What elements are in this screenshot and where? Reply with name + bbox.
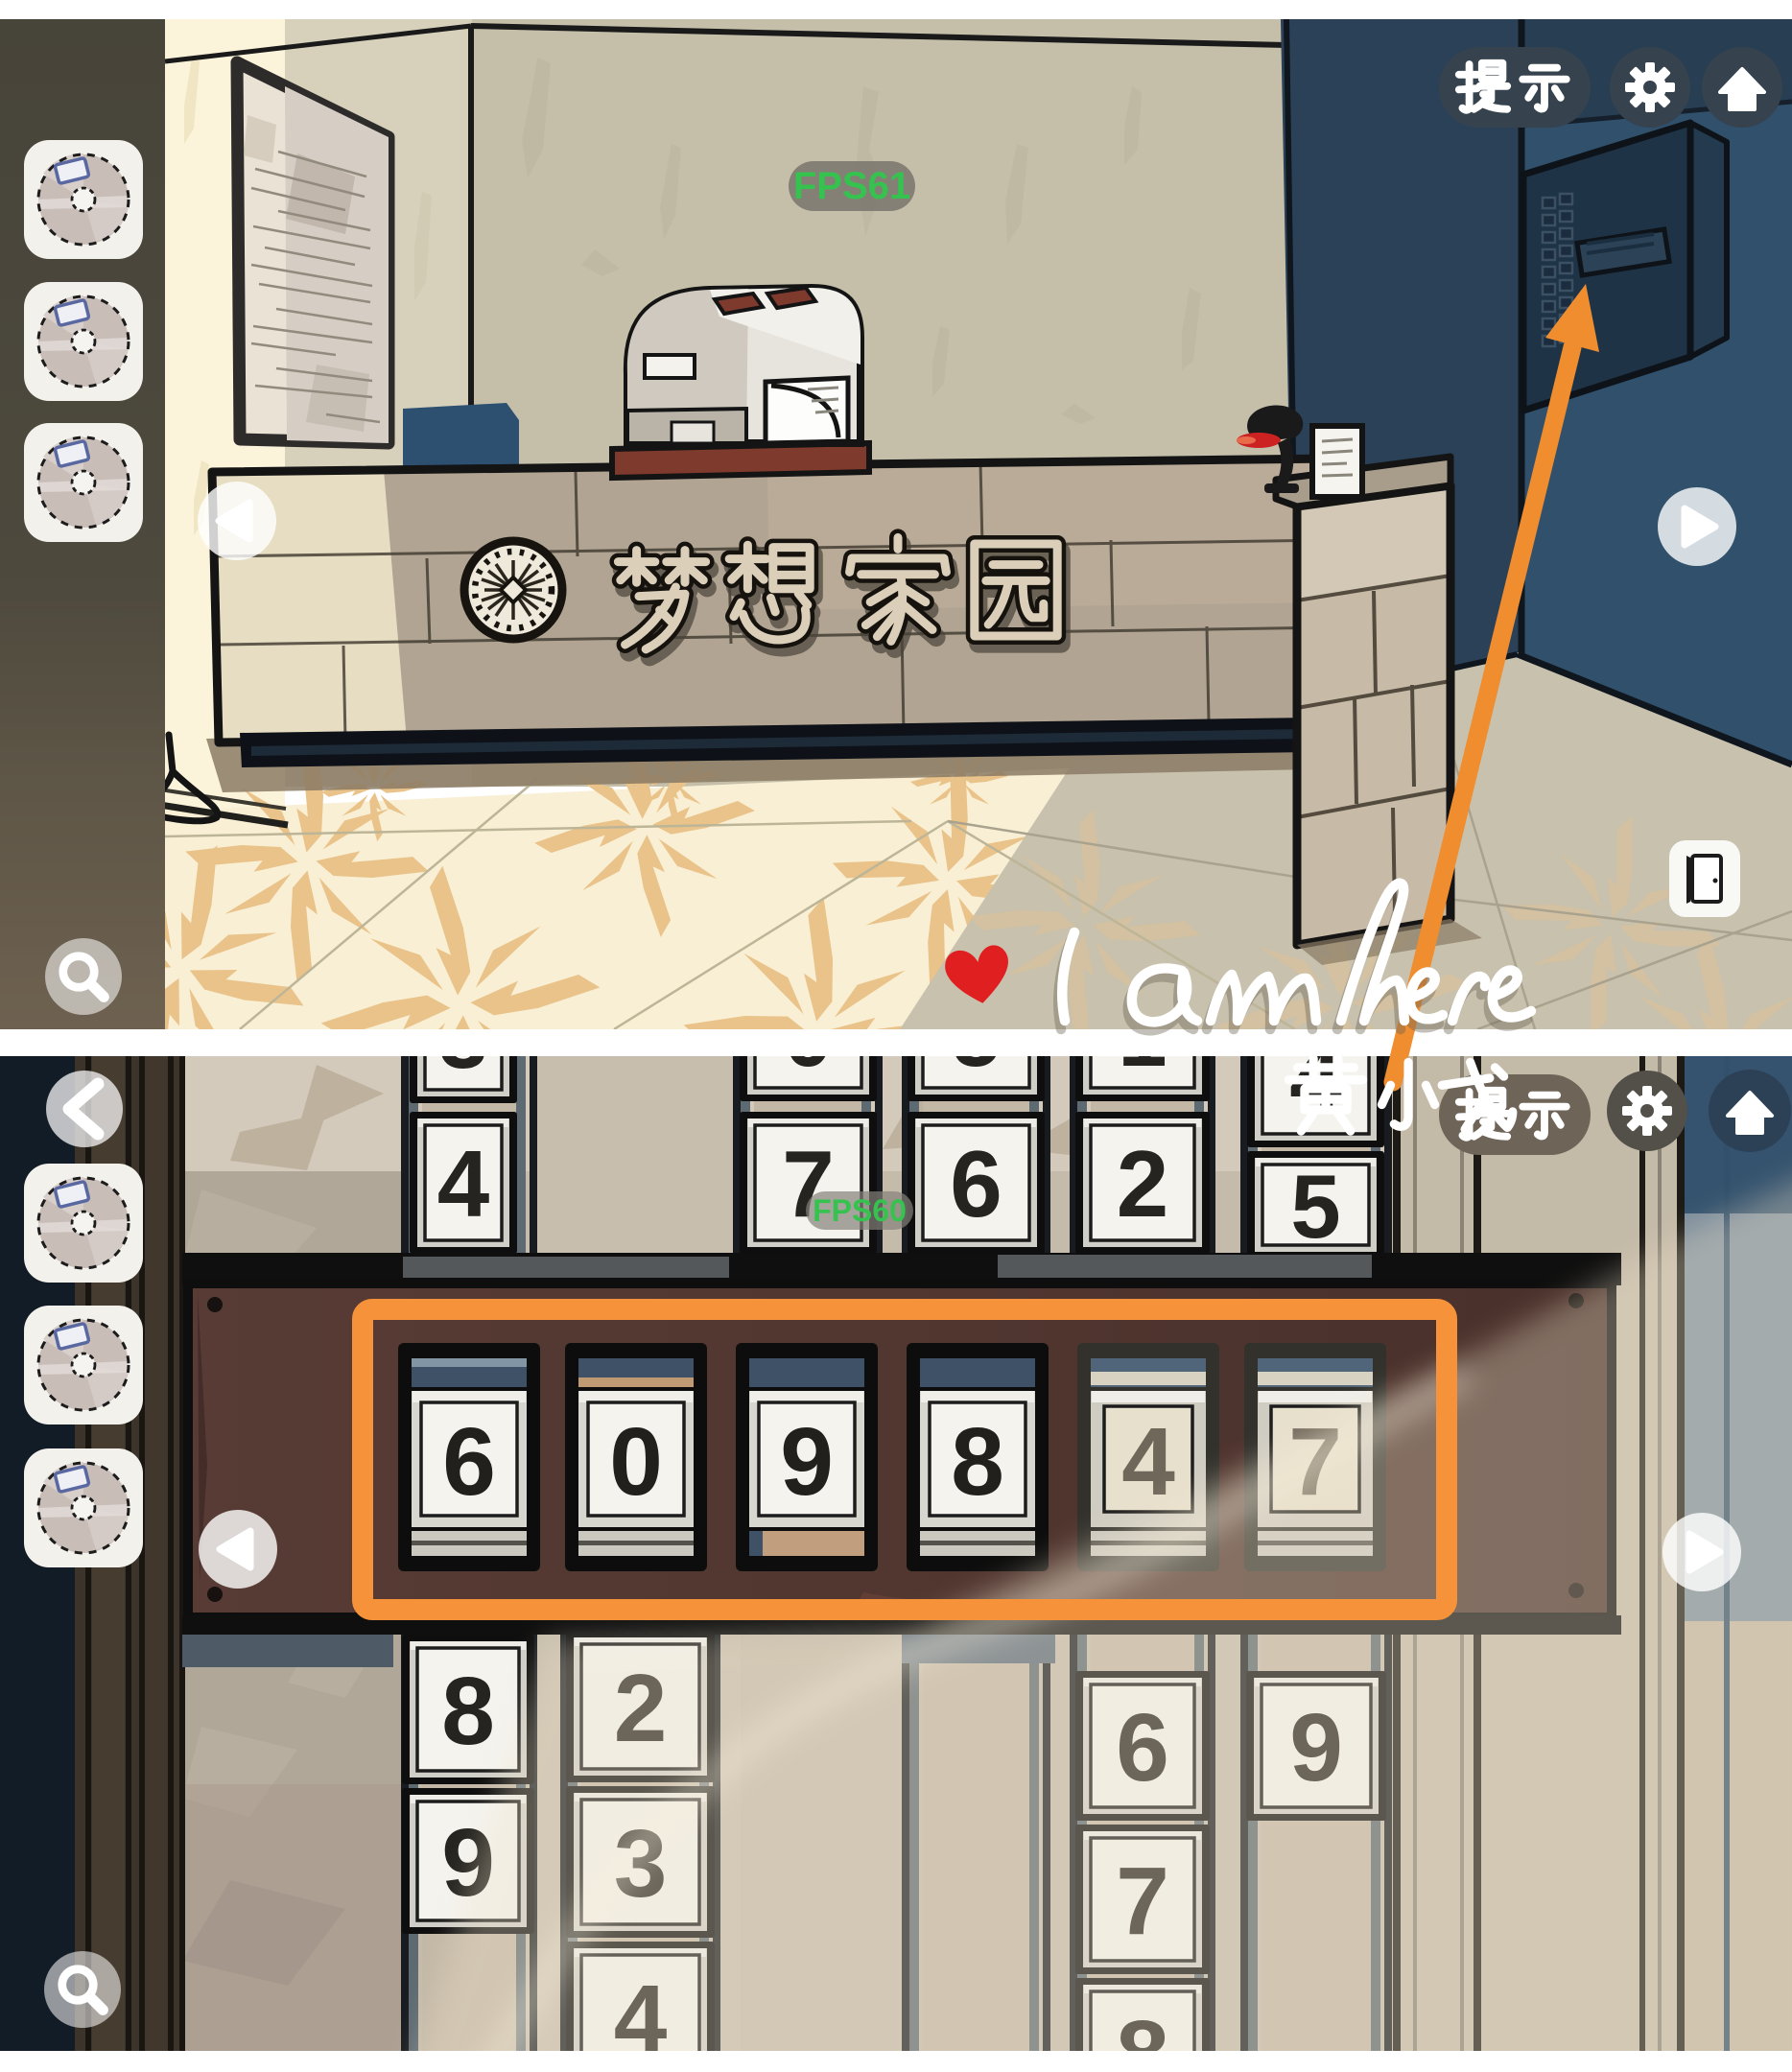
svg-text:4: 4 bbox=[437, 1131, 490, 1236]
svg-text:0: 0 bbox=[609, 1408, 663, 1516]
svg-text:5: 5 bbox=[1290, 1156, 1340, 1257]
svg-text:6: 6 bbox=[442, 1408, 496, 1516]
svg-text:8: 8 bbox=[951, 1408, 1004, 1516]
svg-text:8: 8 bbox=[441, 1658, 495, 1765]
svg-text:4: 4 bbox=[1121, 1408, 1175, 1516]
svg-text:2: 2 bbox=[1117, 1131, 1169, 1236]
svg-text:6: 6 bbox=[950, 1131, 1002, 1236]
svg-text:FPS60: FPS60 bbox=[813, 1193, 907, 1228]
svg-text:FPS61: FPS61 bbox=[793, 165, 910, 207]
svg-text:9: 9 bbox=[780, 1408, 834, 1516]
